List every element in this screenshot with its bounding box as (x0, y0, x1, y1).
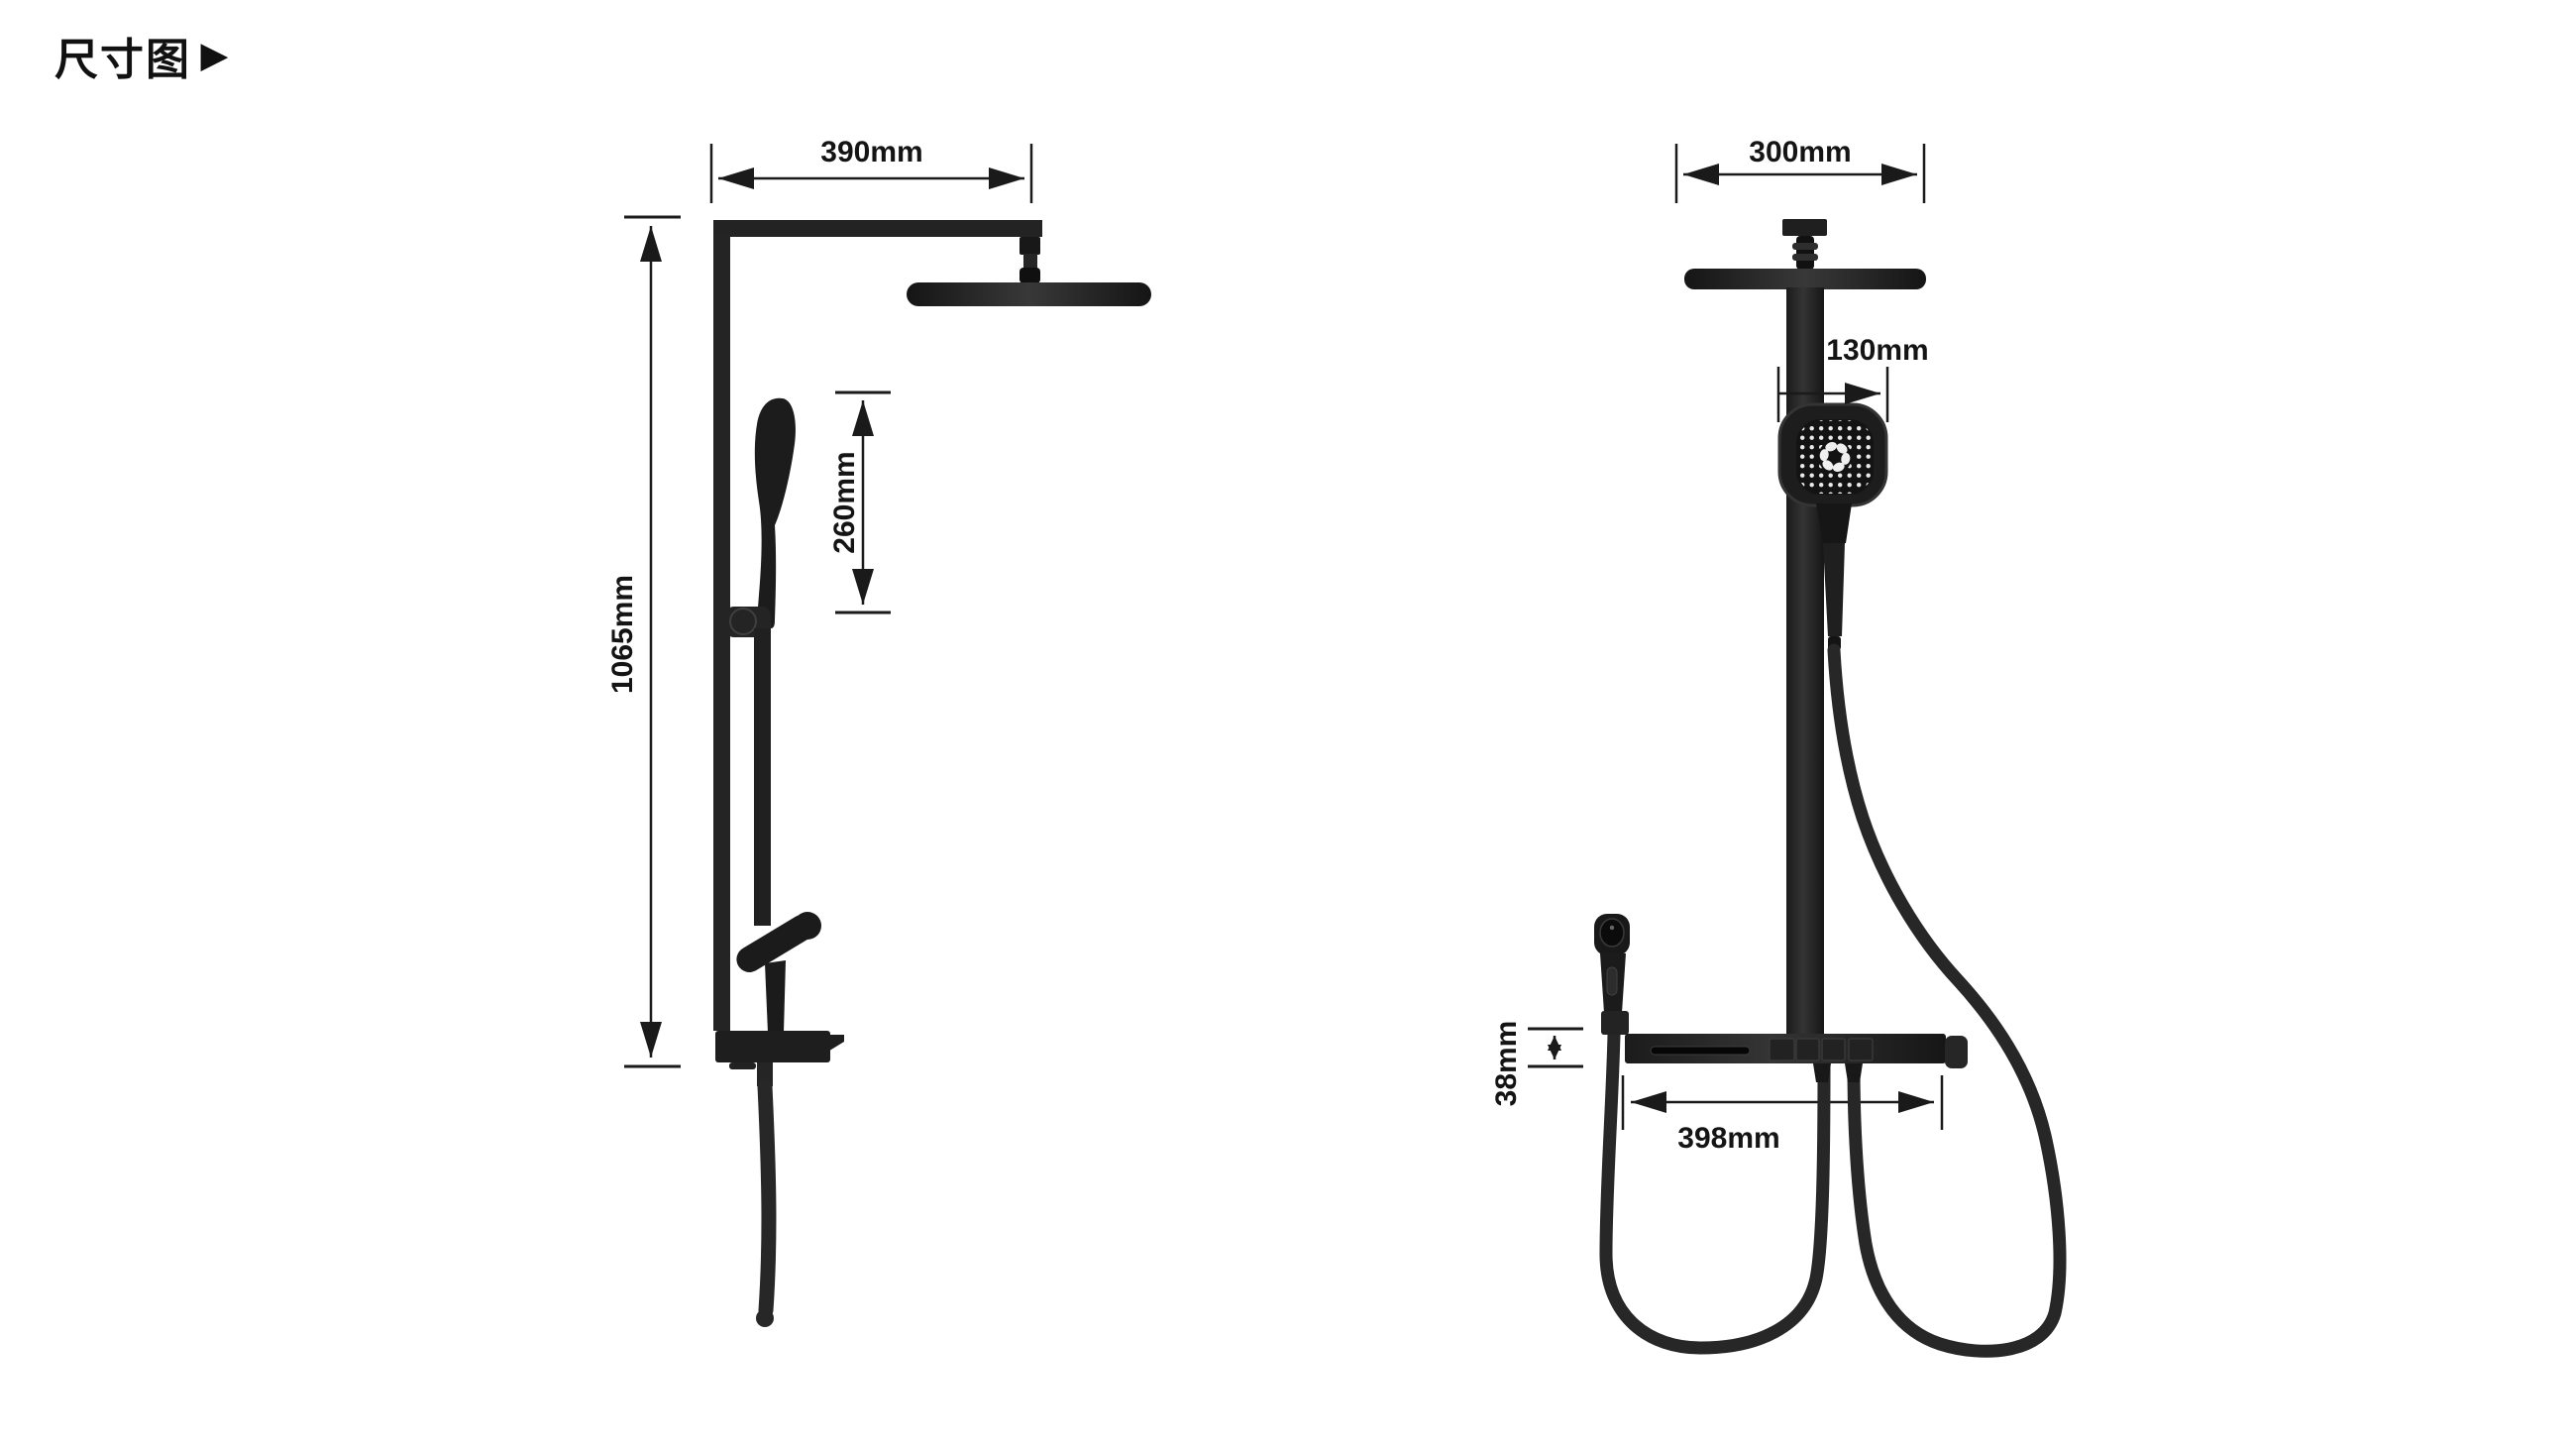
bidet-sprayer-side (732, 910, 821, 1033)
overhead-joint-side (1020, 237, 1040, 283)
front-view: 300mm (1490, 136, 2060, 1351)
shelf-front (1625, 1034, 1968, 1082)
sprayer-hose-front (1606, 1035, 1824, 1348)
dim-shelf-length (1623, 1075, 1942, 1130)
dimension-diagram-page: 尺寸图 ▶ (0, 0, 2576, 1449)
handheld-shower-side (755, 398, 796, 628)
handheld-wand-side (754, 628, 771, 926)
dim-shelf-thickness-label: 38mm (1490, 1021, 1523, 1107)
dim-shelf-length-label: 398mm (1677, 1122, 1779, 1155)
control-button (1849, 1039, 1873, 1060)
control-button (1796, 1039, 1819, 1060)
bidet-sprayer-front (1594, 914, 1630, 1035)
dim-overhead-width-label: 300mm (1749, 136, 1851, 168)
waterfall-spout-slot (1651, 1047, 1750, 1055)
diagram-svg: 390mm 1065mm 260mm (0, 0, 2576, 1449)
shower-column-front (1786, 287, 1824, 1034)
control-button (1770, 1039, 1794, 1060)
dim-handheld-width-label: 130mm (1826, 334, 1928, 367)
dim-arm-reach-label: 390mm (820, 136, 922, 168)
dim-slide-travel-label: 260mm (828, 451, 861, 553)
shelf-end-cap (1945, 1036, 1968, 1068)
overhead-shower-side (907, 282, 1151, 306)
hose-side (756, 1062, 774, 1327)
overhead-joint-front (1792, 236, 1818, 270)
handheld-hose-front (1834, 650, 2060, 1351)
shower-arm-side (713, 220, 1042, 237)
dim-shelf-thickness (1528, 1029, 1583, 1066)
side-view: 390mm 1065mm 260mm (606, 136, 1151, 1327)
control-button (1822, 1039, 1845, 1060)
overhead-shower-front (1684, 269, 1926, 289)
hose-stub (1813, 1063, 1831, 1082)
shelf-side (715, 1031, 844, 1069)
hose-stub (1845, 1063, 1863, 1082)
dim-column-height-label: 1065mm (606, 575, 639, 694)
wall-arm-end (1782, 219, 1827, 236)
